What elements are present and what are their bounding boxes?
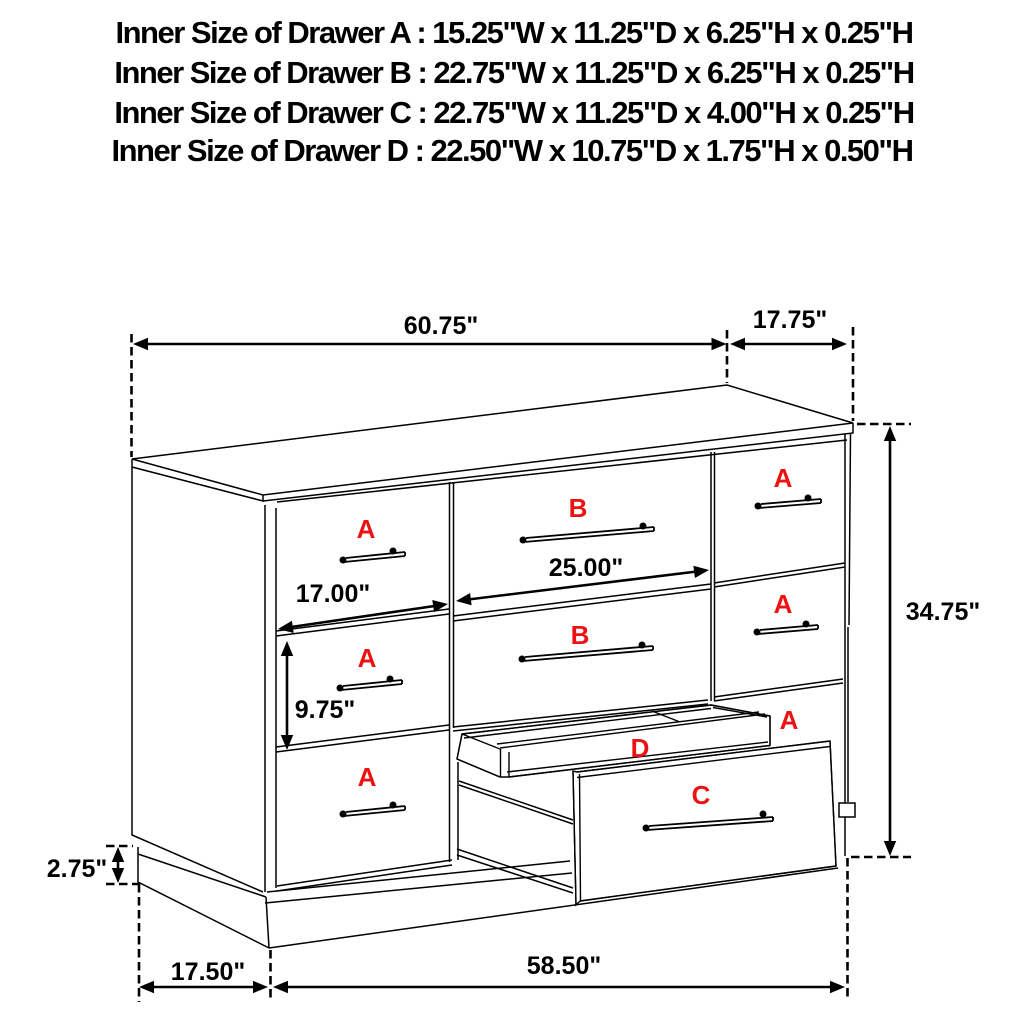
svg-text:Inner Size of Drawer C : 22.75: Inner Size of Drawer C : 22.75"W x 11.25… bbox=[114, 95, 913, 130]
svg-text:A: A bbox=[358, 643, 377, 673]
svg-text:Inner Size of Drawer D : 22.5: Inner Size of Drawer D : 22.50"W x 10.75… bbox=[111, 133, 912, 168]
svg-text:17.50": 17.50" bbox=[171, 958, 245, 986]
svg-text:60.75": 60.75" bbox=[404, 312, 478, 340]
svg-text:B: B bbox=[571, 620, 590, 650]
svg-text:58.50": 58.50" bbox=[527, 952, 601, 980]
svg-text:Inner Size of Drawer A : 15.25: Inner Size of Drawer A : 15.25"W x 11.25… bbox=[116, 15, 913, 50]
svg-text:17.75": 17.75" bbox=[753, 306, 827, 334]
svg-text:A: A bbox=[357, 514, 376, 544]
svg-text:A: A bbox=[780, 705, 799, 735]
svg-text:9.75": 9.75" bbox=[295, 696, 356, 724]
svg-text:A: A bbox=[774, 589, 793, 619]
svg-text:A: A bbox=[774, 463, 793, 493]
svg-text:C: C bbox=[692, 780, 711, 810]
svg-text:D: D bbox=[631, 733, 650, 763]
svg-text:34.75": 34.75" bbox=[906, 598, 980, 626]
svg-text:Inner Size of Drawer B : 22.75: Inner Size of Drawer B : 22.75"W x 11.25… bbox=[114, 55, 913, 90]
svg-text:A: A bbox=[358, 762, 377, 792]
svg-text:B: B bbox=[569, 493, 588, 523]
svg-text:2.75": 2.75" bbox=[47, 855, 108, 883]
svg-text:17.00": 17.00" bbox=[296, 580, 370, 608]
svg-text:25.00": 25.00" bbox=[549, 554, 623, 582]
